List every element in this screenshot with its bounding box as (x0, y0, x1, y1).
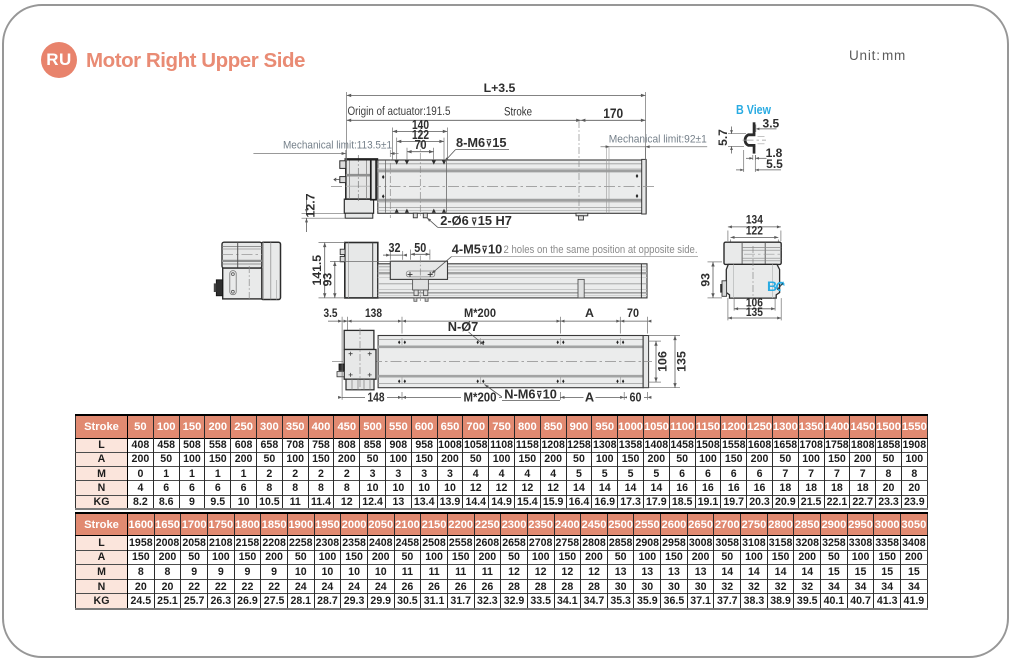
svg-text:M*200: M*200 (464, 389, 497, 404)
svg-text:60: 60 (630, 389, 642, 404)
svg-text:4-M5: 4-M5 (452, 241, 481, 256)
svg-text:3.5: 3.5 (763, 117, 780, 131)
svg-text:138: 138 (365, 306, 382, 320)
svg-text:2 holes on the same position a: 2 holes on the same position at opposite… (504, 244, 698, 256)
svg-text:A: A (585, 389, 594, 404)
svg-text:2-Ø6: 2-Ø6 (440, 213, 468, 228)
svg-text:10: 10 (543, 387, 557, 402)
svg-text:93: 93 (320, 273, 334, 287)
svg-text:135: 135 (746, 305, 763, 319)
svg-text:Stroke: Stroke (504, 104, 532, 118)
svg-text:170: 170 (603, 106, 623, 121)
svg-text:70: 70 (415, 138, 427, 152)
svg-text:Mechanical limit:113.5±1: Mechanical limit:113.5±1 (283, 140, 392, 152)
svg-text:L+3.5: L+3.5 (484, 81, 516, 95)
svg-text:122: 122 (746, 223, 763, 237)
svg-text:A: A (585, 306, 594, 320)
svg-text:148: 148 (368, 389, 385, 404)
svg-text:N-M6: N-M6 (504, 387, 535, 402)
svg-text:50: 50 (414, 241, 426, 255)
svg-text:70: 70 (627, 306, 639, 320)
svg-text:B: B (767, 278, 777, 294)
svg-text:Origin of actuator:191.5: Origin of actuator:191.5 (348, 104, 451, 118)
svg-text:135: 135 (675, 351, 689, 372)
svg-text:Mechanical limit:92±1: Mechanical limit:92±1 (609, 134, 707, 146)
svg-text:12.7: 12.7 (304, 193, 318, 217)
svg-text:B View: B View (736, 103, 771, 117)
svg-text:8-M6: 8-M6 (456, 135, 485, 150)
svg-text:32: 32 (389, 241, 401, 255)
svg-text:15: 15 (492, 135, 506, 150)
svg-text:5.7: 5.7 (716, 129, 730, 146)
svg-text:3.5: 3.5 (324, 306, 338, 320)
svg-text:N-Ø7: N-Ø7 (448, 319, 479, 334)
svg-text:10: 10 (488, 241, 502, 256)
svg-text:5.5: 5.5 (766, 157, 783, 171)
svg-text:106: 106 (656, 351, 670, 372)
svg-text:15 H7: 15 H7 (478, 213, 512, 228)
svg-text:93: 93 (699, 273, 713, 287)
